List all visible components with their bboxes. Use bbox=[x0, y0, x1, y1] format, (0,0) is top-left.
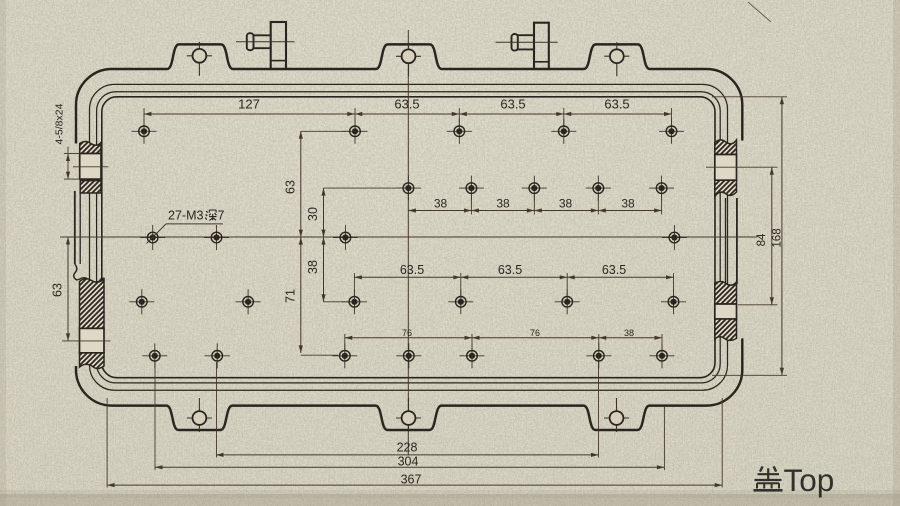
svg-text:63: 63 bbox=[51, 283, 65, 297]
svg-text:63: 63 bbox=[284, 180, 298, 194]
svg-text:27-M3: 27-M3 bbox=[168, 209, 203, 223]
svg-text:38: 38 bbox=[496, 197, 510, 211]
svg-text:304: 304 bbox=[398, 455, 419, 469]
svg-text:63.5: 63.5 bbox=[602, 263, 626, 277]
svg-text:168: 168 bbox=[772, 228, 784, 247]
svg-text:63.5: 63.5 bbox=[500, 97, 525, 112]
svg-text:76: 76 bbox=[530, 328, 540, 338]
svg-text:63.5: 63.5 bbox=[400, 263, 424, 277]
svg-text:71: 71 bbox=[284, 289, 298, 303]
svg-text:63.5: 63.5 bbox=[394, 97, 419, 112]
svg-text:84: 84 bbox=[756, 233, 768, 246]
svg-text:367: 367 bbox=[401, 473, 422, 487]
svg-text:76: 76 bbox=[402, 328, 412, 338]
svg-text:127: 127 bbox=[238, 97, 260, 112]
svg-text:38: 38 bbox=[306, 260, 320, 274]
svg-text:228: 228 bbox=[397, 441, 418, 455]
svg-text:38: 38 bbox=[434, 197, 448, 211]
svg-text:38: 38 bbox=[559, 197, 573, 211]
svg-text:63.5: 63.5 bbox=[498, 263, 522, 277]
svg-text:38: 38 bbox=[621, 197, 635, 211]
svg-text:7: 7 bbox=[218, 209, 225, 223]
svg-text:30: 30 bbox=[306, 207, 320, 221]
svg-text:63.5: 63.5 bbox=[604, 97, 629, 112]
svg-text:38: 38 bbox=[624, 328, 634, 338]
svg-text:Top: Top bbox=[784, 462, 835, 498]
svg-text:4-5/8x24: 4-5/8x24 bbox=[54, 103, 66, 144]
